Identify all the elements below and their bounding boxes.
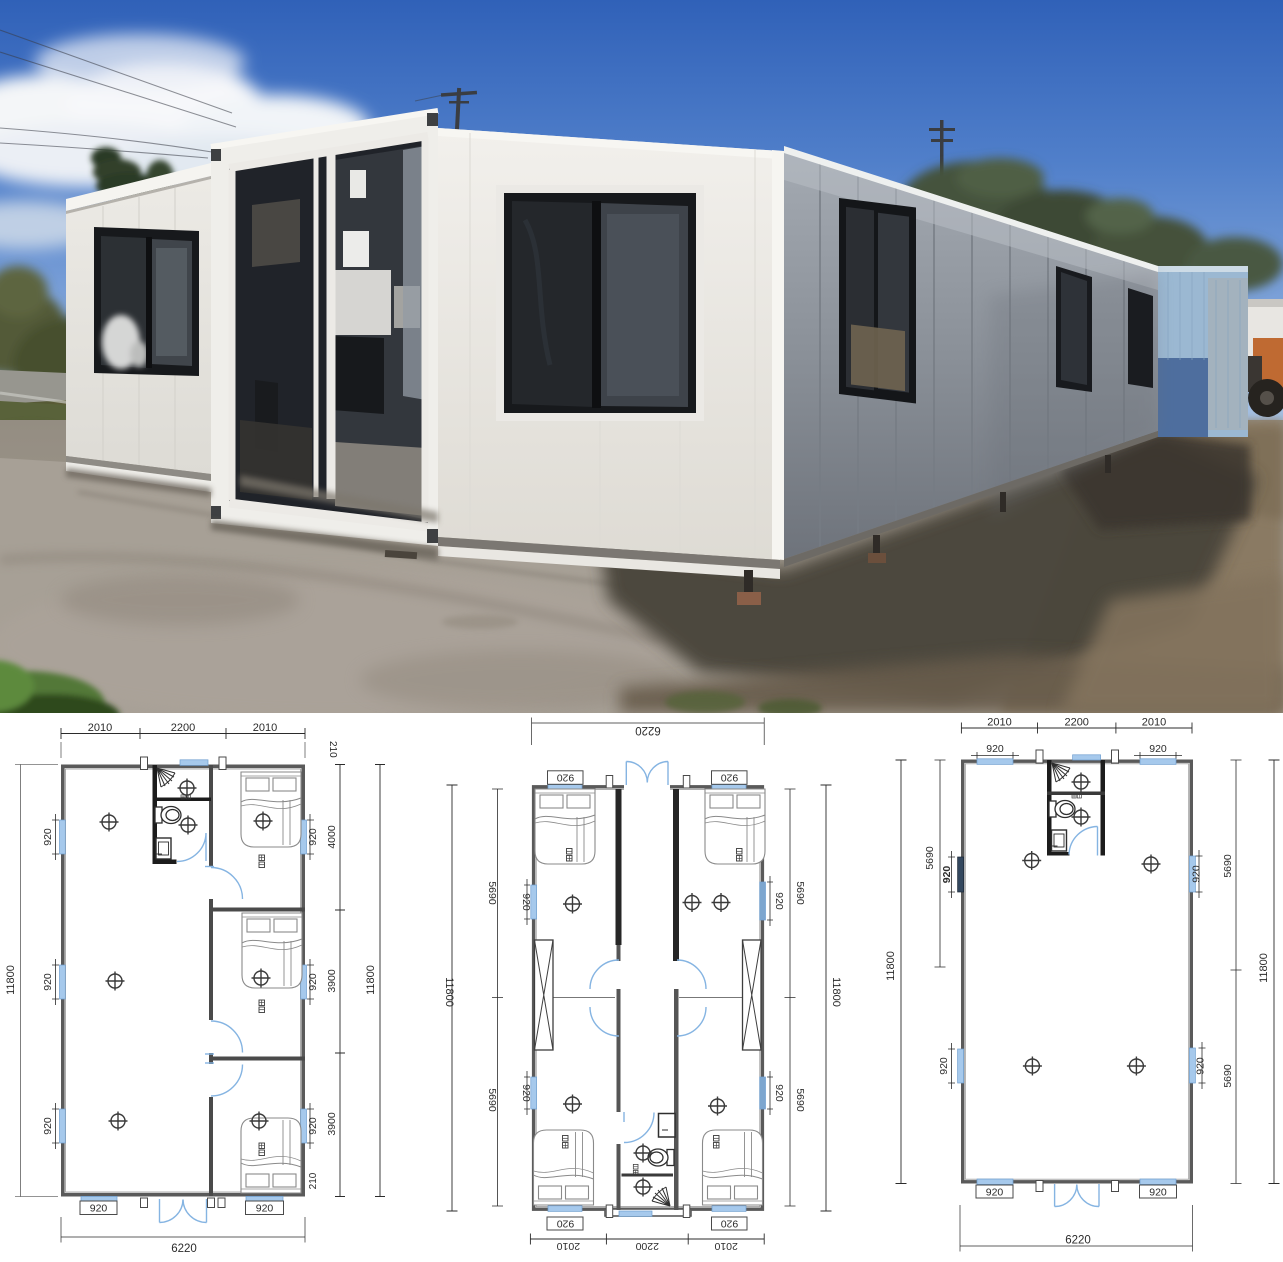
svg-text:3900: 3900 (326, 1112, 338, 1136)
svg-text:920: 920 (90, 1203, 108, 1215)
svg-text:5690: 5690 (1222, 1064, 1234, 1088)
svg-text:2010: 2010 (714, 1240, 738, 1252)
svg-text:11800: 11800 (830, 977, 842, 1007)
svg-text:920: 920 (307, 1117, 319, 1135)
svg-text:2010: 2010 (253, 722, 277, 734)
svg-text:920: 920 (721, 1218, 739, 1230)
svg-text:5690: 5690 (794, 881, 806, 905)
svg-text:920: 920 (986, 1187, 1004, 1199)
svg-text:3900: 3900 (326, 969, 338, 993)
svg-text:210: 210 (327, 741, 338, 758)
svg-text:920: 920 (42, 973, 54, 991)
svg-text:6220: 6220 (1065, 1235, 1091, 1247)
svg-text:2200: 2200 (171, 722, 195, 734)
svg-text:5690: 5690 (486, 1088, 498, 1112)
svg-text:920: 920 (773, 1084, 785, 1102)
svg-text:920: 920 (557, 772, 575, 784)
svg-text:5690: 5690 (924, 846, 936, 870)
svg-text:920: 920 (256, 1203, 274, 1215)
svg-text:920: 920 (1149, 743, 1167, 755)
svg-text:6220: 6220 (171, 1243, 197, 1255)
svg-text:2010: 2010 (557, 1240, 581, 1252)
svg-text:11800: 11800 (443, 977, 455, 1007)
svg-text:920: 920 (773, 892, 785, 910)
svg-text:920: 920 (938, 1057, 950, 1075)
svg-text:11800: 11800 (885, 951, 897, 981)
svg-text:11800: 11800 (365, 965, 377, 995)
svg-text:2010: 2010 (1142, 717, 1166, 729)
svg-text:2200: 2200 (635, 1240, 659, 1252)
svg-text:920: 920 (721, 772, 739, 784)
svg-text:5690: 5690 (486, 881, 498, 905)
svg-text:2010: 2010 (88, 722, 112, 734)
svg-text:210: 210 (308, 1172, 319, 1189)
svg-text:920: 920 (42, 828, 54, 846)
svg-text:920: 920 (520, 893, 532, 911)
svg-text:920: 920 (42, 1117, 54, 1135)
svg-text:11800: 11800 (1258, 953, 1270, 983)
svg-text:11800: 11800 (5, 965, 17, 995)
svg-text:5690: 5690 (1222, 854, 1234, 878)
svg-text:5690: 5690 (794, 1088, 806, 1112)
svg-text:2010: 2010 (987, 717, 1011, 729)
svg-text:920: 920 (520, 1084, 532, 1102)
svg-text:6220: 6220 (635, 724, 661, 736)
svg-text:920: 920 (941, 866, 953, 884)
svg-text:920: 920 (307, 973, 319, 991)
svg-text:920: 920 (1195, 1057, 1207, 1075)
svg-text:920: 920 (307, 828, 319, 846)
svg-text:920: 920 (557, 1218, 575, 1230)
svg-text:4000: 4000 (326, 825, 338, 849)
svg-text:920: 920 (986, 743, 1004, 755)
svg-text:2200: 2200 (1064, 717, 1088, 729)
svg-text:920: 920 (1191, 865, 1203, 883)
svg-text:920: 920 (1149, 1187, 1167, 1199)
